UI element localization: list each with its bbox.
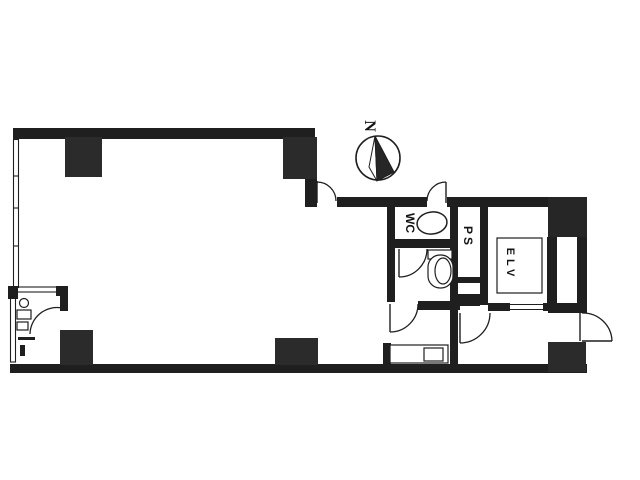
fixture-round [20, 299, 29, 308]
wc-label: WC [403, 213, 417, 233]
door-swing-arc [30, 308, 62, 334]
wall-top [13, 128, 315, 139]
basin-icon [416, 210, 448, 235]
door-swing-arc [317, 182, 336, 201]
door-washroom [390, 304, 418, 332]
window-left-wall [14, 140, 19, 288]
wall-corner-topright [548, 197, 587, 237]
wall-elv-south-2 [542, 303, 549, 311]
column-top-left [65, 137, 102, 177]
door-entrance [580, 313, 612, 341]
floor-plan-page: N WC PS ELV [0, 0, 640, 480]
fixture-rect-1 [17, 310, 31, 319]
door-bathroom [399, 249, 427, 277]
ps-label: PS [461, 226, 475, 248]
elevator-label: ELV [504, 248, 516, 281]
floor-plan-drawing: N WC PS ELV [0, 0, 640, 480]
door-swing-arc [390, 304, 418, 332]
wall-right-slot [577, 237, 587, 305]
toilet-seat [435, 258, 451, 284]
fixture-post [20, 345, 25, 356]
balcony-box-fixtures [17, 299, 35, 357]
wall-ps-bottom [458, 294, 480, 306]
compass: N [356, 120, 400, 181]
fixture-rect-2 [17, 322, 28, 330]
sink [424, 348, 443, 361]
door-swing-arc [582, 313, 612, 341]
door-swing-arc [427, 182, 446, 201]
column-bottom-left [60, 330, 93, 365]
door-swing-arc [460, 313, 490, 343]
wall-ps-divider [458, 277, 480, 283]
wall-hall-west [450, 305, 458, 367]
wall-corridor-2 [447, 197, 548, 207]
column-bottom-right [548, 342, 586, 372]
fixture-bar [18, 337, 35, 340]
kitchenette-counter-icon [390, 345, 448, 363]
door-north-2 [427, 182, 446, 203]
wall-bottom [10, 364, 587, 373]
wall-corridor-1 [337, 197, 427, 207]
wall-ps-east [480, 207, 488, 305]
elevator-cab-outline [497, 238, 542, 293]
door-balcony-box [30, 308, 62, 334]
north-label: N [361, 120, 378, 132]
wall-wc-west [387, 207, 395, 302]
wall-elv-east [547, 237, 557, 305]
elevator-car [497, 238, 543, 312]
wall-wc-bath-divider [393, 239, 450, 248]
toilet-icon [428, 250, 453, 288]
column-bottom-mid [275, 338, 318, 365]
door-swing-arc [399, 249, 427, 277]
door-north-1 [317, 181, 336, 203]
column-top-mid [283, 137, 317, 179]
door-hall [460, 313, 490, 343]
compass-needle-east [375, 136, 394, 181]
wall-elv-south-1 [488, 303, 510, 311]
